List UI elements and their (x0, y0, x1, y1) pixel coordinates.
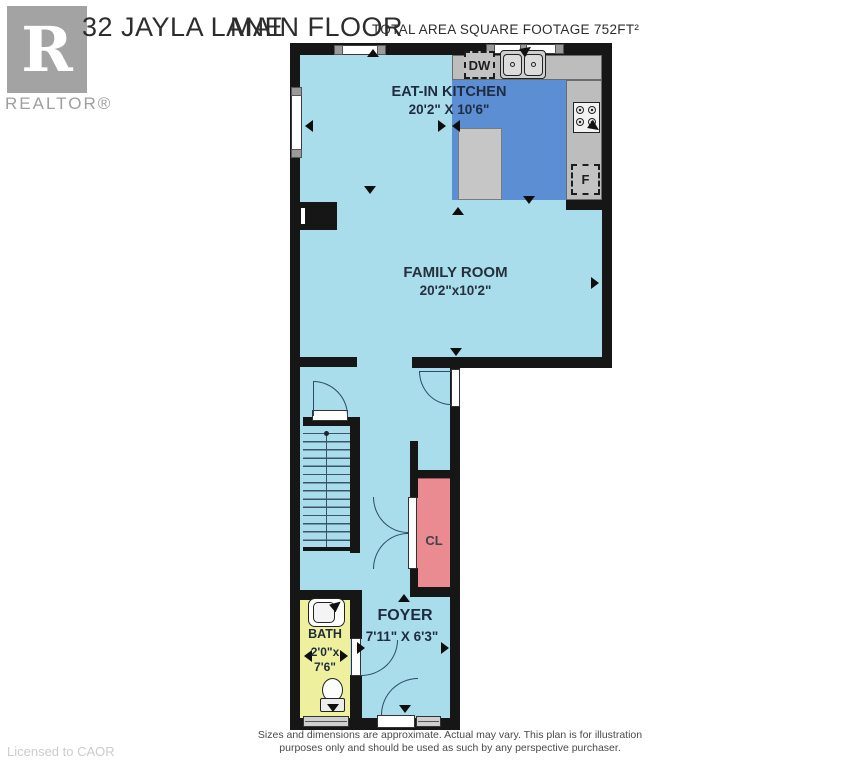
dishwasher: DW (464, 51, 495, 79)
kitchen-island (458, 128, 502, 200)
dim-arrow-up (367, 49, 379, 57)
fireplace (293, 202, 337, 230)
wall-closet-bottom (410, 587, 450, 597)
dim-arrow-left (305, 120, 313, 132)
window-cap (555, 44, 564, 54)
fireplace-insert (301, 208, 305, 224)
fridge: F (571, 164, 600, 195)
dim-arrow-left (452, 120, 460, 132)
sink-drain-icon (510, 62, 515, 67)
bath-dims-height: 7'6" (299, 660, 351, 674)
wall-family-bottom-left (293, 357, 357, 367)
dim-arrow-down (327, 704, 339, 712)
kitchen-label: EAT-IN KITCHEN (378, 84, 520, 100)
window-cap (334, 45, 343, 55)
license-text: Licensed to CAOR (7, 744, 115, 759)
staircase-direction-dot (324, 431, 329, 436)
wall-family-bottom-right (412, 357, 612, 368)
dim-arrow-right (438, 120, 446, 132)
sink-drain-icon (531, 62, 536, 67)
window-mullion (305, 721, 347, 722)
disclaimer-line-2: purposes only and should be used as such… (250, 742, 650, 755)
dim-arrow-up (398, 594, 410, 602)
dim-arrow-down (364, 186, 376, 194)
staircase-bottom-edge (303, 547, 360, 551)
disclaimer-text: Sizes and dimensions are approximate. Ac… (250, 729, 650, 754)
wall-bath-right-lower (350, 675, 362, 718)
burner-icon (588, 106, 596, 114)
dim-arrow-up (452, 207, 464, 215)
window-cap (291, 149, 302, 158)
window-mullion (418, 721, 439, 722)
dim-arrow-down (523, 196, 535, 204)
staircase-centerline (326, 431, 327, 547)
bath-label: BATH (299, 627, 351, 641)
wall-closet-top (410, 470, 450, 478)
family-room-label: FAMILY ROOM (378, 264, 533, 281)
wall-stair-right (350, 417, 360, 553)
window-cap (291, 87, 302, 96)
wall-kitchen-stub (566, 200, 612, 210)
kitchen-dims: 20'2" X 10'6" (378, 102, 520, 117)
disclaimer-line-1: Sizes and dimensions are approximate. Ac… (250, 729, 650, 742)
realtor-logo-text: REALTOR® (5, 94, 112, 114)
family-room-dims: 20'2"x10'2" (378, 283, 533, 298)
dim-arrow-down (399, 705, 411, 713)
dim-arrow-down (450, 348, 462, 356)
closet-label: CL (416, 533, 452, 548)
floor-plan-page: R REALTOR® 32 JAYLA LANE MAIN FLOOR TOTA… (0, 0, 866, 768)
burner-icon (576, 118, 584, 126)
burner-icon (576, 106, 584, 114)
door-front-entry (377, 715, 415, 728)
bath-dims-width: 2'0"x (299, 645, 351, 659)
window-left-wall (291, 87, 302, 158)
area-label: TOTAL AREA SQUARE FOOTAGE 752FT² (372, 22, 639, 37)
dim-arrow-right (591, 277, 599, 289)
wall-closet-left-a (410, 478, 418, 498)
foyer-label: FOYER (358, 607, 452, 625)
door-family-to-hall (451, 369, 460, 407)
realtor-logo-icon: R (7, 6, 87, 93)
foyer-dims: 7'11" X 6'3" (350, 629, 454, 644)
wall-hall-right (450, 368, 460, 730)
